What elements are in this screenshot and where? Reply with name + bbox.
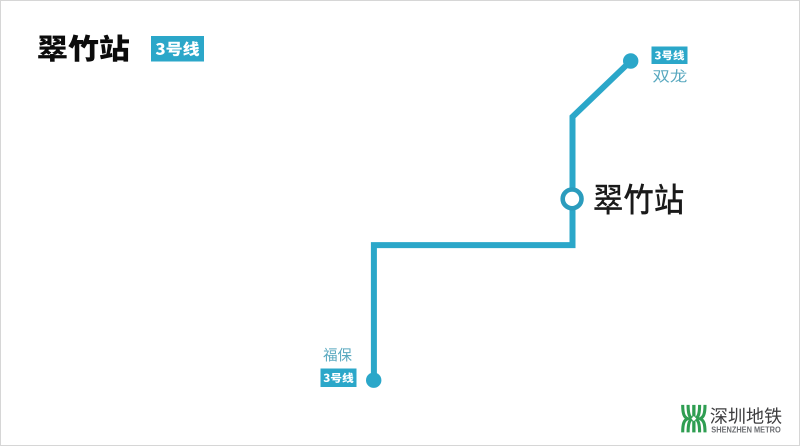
svg-text:SHENZHEN METRO: SHENZHEN METRO bbox=[711, 424, 781, 434]
